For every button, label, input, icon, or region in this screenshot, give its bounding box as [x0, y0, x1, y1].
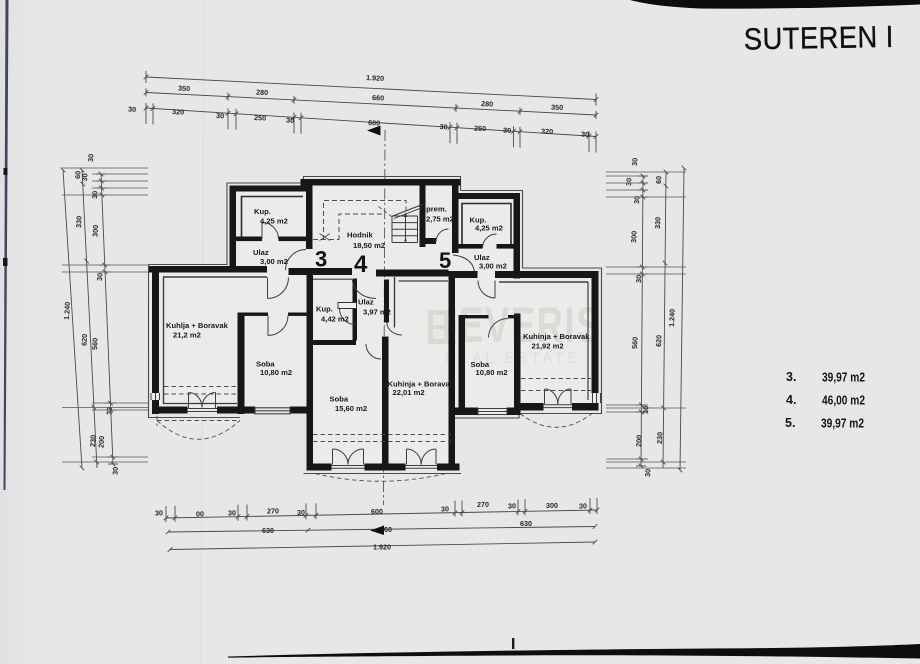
- svg-text:3,00 m2: 3,00 m2: [479, 261, 507, 270]
- svg-text:46,00 m2: 46,00 m2: [822, 394, 865, 408]
- svg-text:00: 00: [196, 509, 204, 518]
- svg-text:30: 30: [579, 501, 587, 510]
- svg-text:320: 320: [541, 127, 553, 137]
- svg-text:Kup.: Kup.: [316, 305, 333, 314]
- svg-text:21,2 m2: 21,2 m2: [173, 331, 201, 340]
- svg-text:39,97 m2: 39,97 m2: [821, 417, 864, 431]
- svg-text:SUTEREN I: SUTEREN I: [744, 20, 895, 57]
- svg-text:30: 30: [286, 116, 294, 125]
- svg-text:350: 350: [551, 103, 563, 113]
- svg-text:3: 3: [315, 247, 327, 272]
- svg-text:300: 300: [546, 501, 558, 510]
- svg-text:Kup.: Kup.: [254, 207, 271, 216]
- svg-text:3,00 m2: 3,00 m2: [260, 257, 288, 266]
- svg-text:280: 280: [256, 88, 268, 98]
- svg-text:EVERIS: EVERIS: [459, 297, 602, 353]
- svg-text:60: 60: [654, 176, 663, 184]
- svg-text:Soba: Soba: [330, 395, 349, 404]
- svg-text:10,80 m2: 10,80 m2: [260, 368, 292, 377]
- svg-text:30: 30: [128, 105, 136, 114]
- svg-text:300: 300: [91, 225, 101, 237]
- svg-text:660: 660: [372, 93, 384, 103]
- svg-text:30: 30: [86, 154, 95, 162]
- svg-text:1.920: 1.920: [366, 73, 384, 83]
- svg-text:200: 200: [97, 436, 107, 448]
- svg-text:Ulaz: Ulaz: [253, 248, 269, 257]
- svg-text:30: 30: [297, 508, 305, 517]
- svg-text:600: 600: [368, 118, 380, 128]
- svg-text:4,42 m2: 4,42 m2: [321, 315, 349, 324]
- svg-text:Sprem.: Sprem.: [421, 205, 447, 214]
- svg-text:15,60 m2: 15,60 m2: [335, 404, 367, 413]
- svg-text:REAL ESTATE: REAL ESTATE: [445, 350, 581, 367]
- svg-text:200: 200: [634, 435, 644, 447]
- svg-text:3.: 3.: [786, 370, 796, 384]
- svg-text:30: 30: [441, 504, 449, 513]
- svg-text:630: 630: [520, 519, 532, 528]
- svg-text:Hodnik: Hodnik: [347, 231, 374, 240]
- svg-text:10,80 m2: 10,80 m2: [476, 368, 508, 377]
- svg-text:5: 5: [439, 248, 451, 273]
- svg-text:350: 350: [178, 84, 190, 94]
- svg-text:1.920: 1.920: [373, 543, 391, 552]
- svg-text:30: 30: [105, 407, 114, 415]
- svg-text:Kuhlja + Boravak: Kuhlja + Boravak: [166, 321, 229, 330]
- svg-text:1.240: 1.240: [62, 302, 72, 320]
- svg-text:4: 4: [354, 251, 368, 278]
- svg-text:30: 30: [155, 508, 163, 517]
- svg-text:18,50 m2: 18,50 m2: [353, 241, 385, 250]
- svg-text:250: 250: [254, 113, 266, 123]
- svg-text:30: 30: [641, 406, 650, 414]
- svg-text:320: 320: [172, 107, 184, 117]
- svg-text:Ulaz: Ulaz: [358, 298, 374, 307]
- svg-text:330: 330: [74, 216, 84, 228]
- svg-text:30: 30: [581, 130, 589, 139]
- svg-text:4,25 m2: 4,25 m2: [260, 217, 288, 226]
- svg-text:620: 620: [80, 334, 90, 346]
- svg-text:270: 270: [477, 500, 489, 509]
- svg-text:300: 300: [629, 231, 639, 243]
- svg-text:30: 30: [508, 501, 516, 510]
- svg-text:630: 630: [262, 526, 274, 535]
- svg-text:3,97 m2: 3,97 m2: [363, 308, 391, 317]
- svg-text:30: 30: [80, 173, 89, 181]
- svg-text:30: 30: [228, 508, 236, 517]
- svg-text:Kuhinja + Boravak: Kuhinja + Boravak: [523, 332, 590, 341]
- svg-text:330: 330: [653, 217, 662, 229]
- svg-text:270: 270: [267, 506, 279, 515]
- svg-text:4.: 4.: [786, 393, 796, 407]
- svg-text:30: 30: [216, 111, 224, 120]
- svg-text:22,01 m2: 22,01 m2: [393, 388, 425, 397]
- svg-text:5.: 5.: [785, 416, 795, 430]
- svg-text:620: 620: [654, 335, 663, 347]
- svg-text:4,25 m2: 4,25 m2: [475, 224, 503, 233]
- svg-text:30: 30: [630, 158, 639, 166]
- svg-text:30: 30: [95, 273, 104, 281]
- svg-text:39,97 m2: 39,97 m2: [822, 371, 865, 385]
- svg-text:30: 30: [503, 126, 511, 135]
- svg-text:280: 280: [481, 99, 493, 109]
- svg-text:1.240: 1.240: [667, 309, 677, 327]
- svg-text:230: 230: [655, 432, 664, 444]
- svg-text:560: 560: [90, 338, 100, 350]
- svg-text:2,75 m2: 2,75 m2: [426, 215, 454, 224]
- svg-text:30: 30: [643, 469, 652, 477]
- svg-text:560: 560: [630, 337, 640, 349]
- svg-text:60: 60: [384, 525, 392, 534]
- svg-text:30: 30: [111, 467, 120, 475]
- svg-text:250: 250: [474, 124, 486, 134]
- svg-text:30: 30: [634, 275, 643, 283]
- svg-text:600: 600: [371, 507, 383, 516]
- svg-text:30: 30: [624, 178, 633, 186]
- svg-text:21,92 m2: 21,92 m2: [532, 341, 564, 350]
- svg-text:30: 30: [439, 122, 447, 131]
